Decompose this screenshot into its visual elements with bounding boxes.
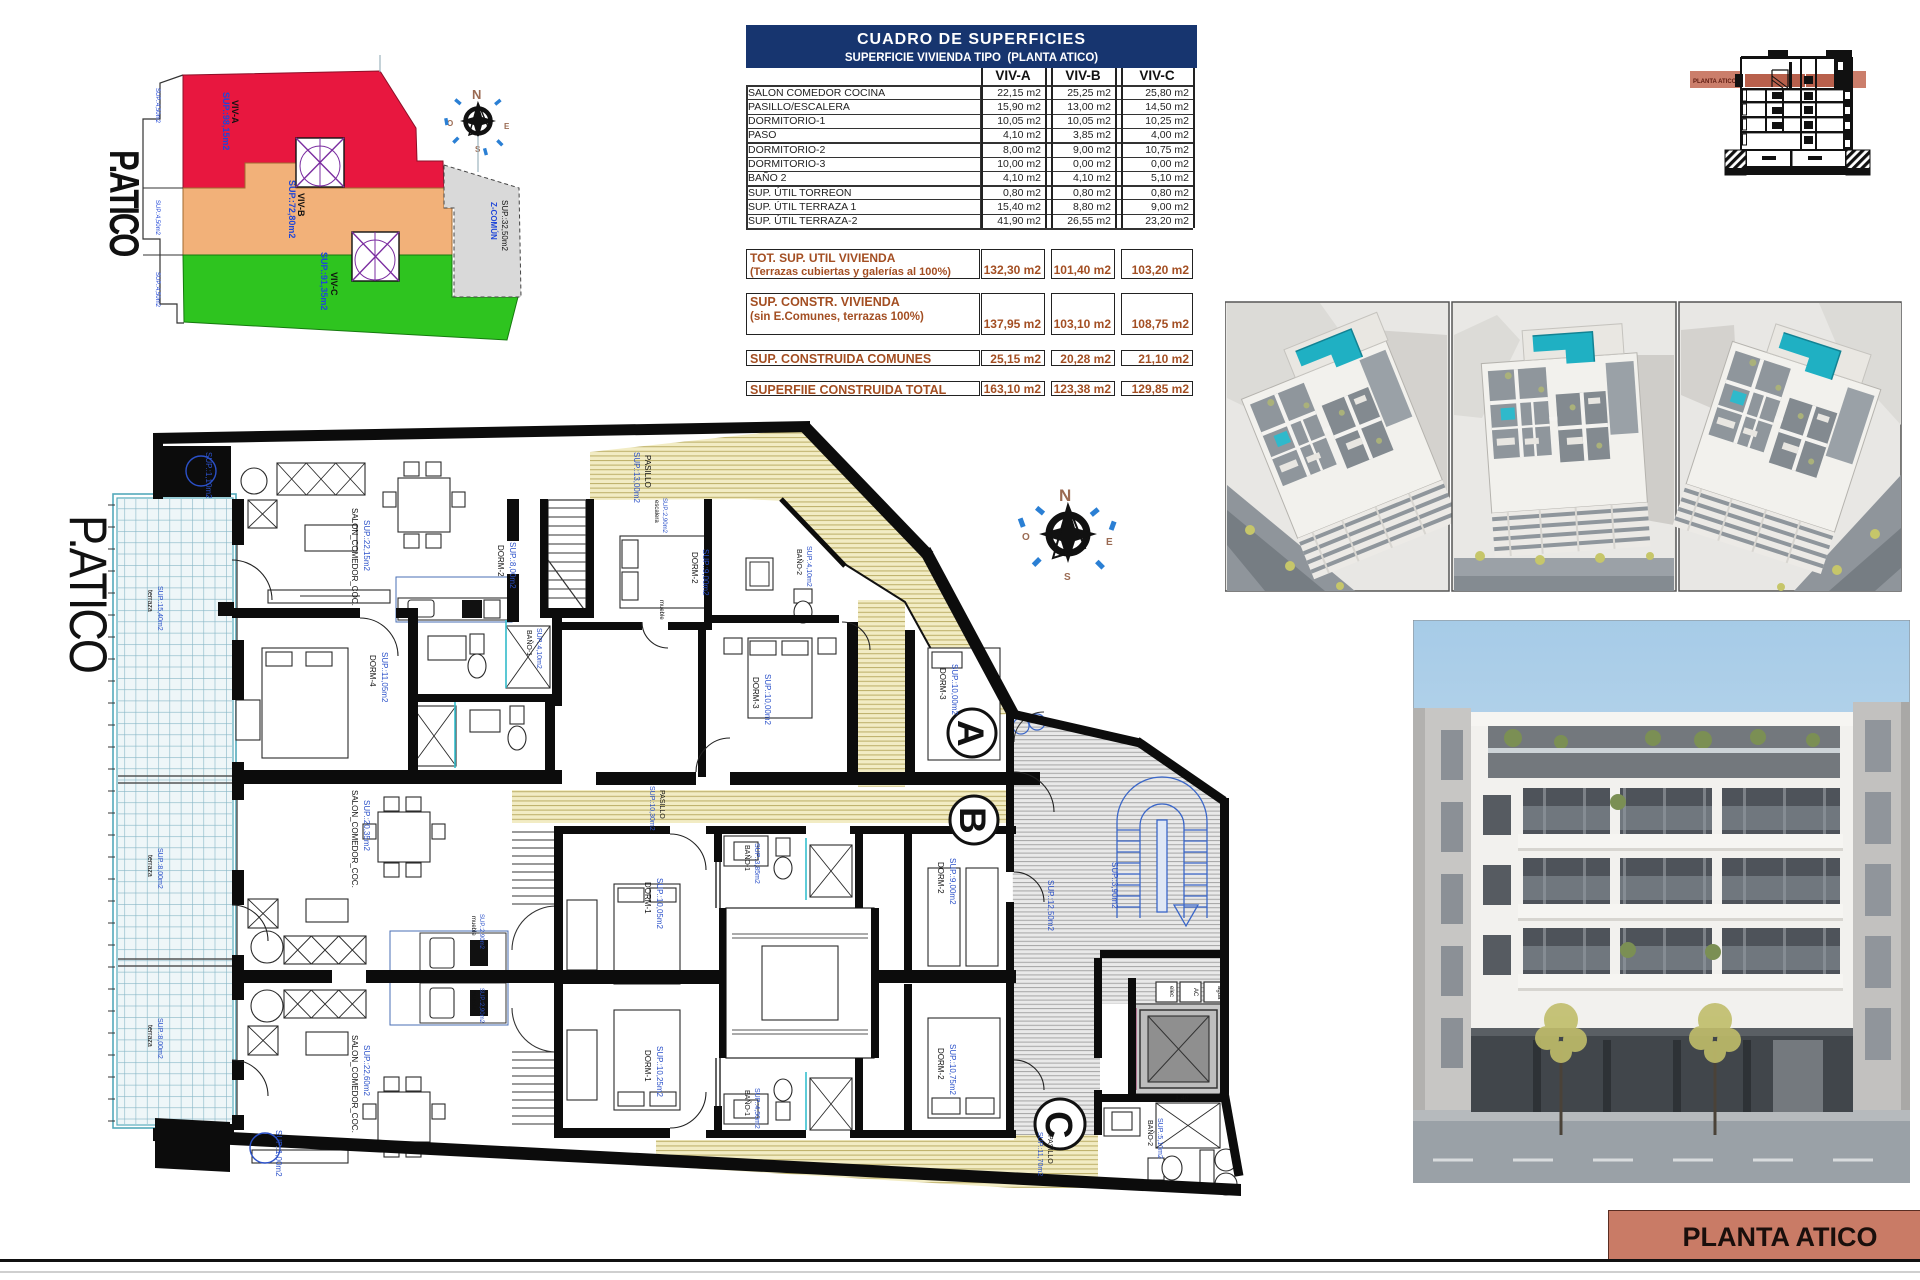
svg-text:DORM-2: DORM-2	[496, 545, 505, 577]
svg-text:terraza: terraza	[146, 1025, 153, 1047]
svg-text:A: A	[950, 720, 991, 747]
svg-text:BAÑO-2: BAÑO-2	[795, 549, 804, 575]
svg-text:SUP.:91,35m2: SUP.:91,35m2	[319, 252, 329, 310]
svg-text:elec: elec	[1168, 986, 1174, 997]
svg-text:mueble: mueble	[470, 990, 476, 1010]
svg-text:DORM-3: DORM-3	[938, 668, 947, 700]
svg-text:PASILLO: PASILLO	[643, 455, 652, 488]
svg-text:E: E	[1106, 537, 1113, 548]
svg-text:DORM-2: DORM-2	[690, 552, 699, 584]
svg-text:SUP.:10,05m2: SUP.:10,05m2	[655, 878, 664, 930]
svg-text:VIV-C: VIV-C	[329, 272, 339, 296]
svg-text:SUP.:13,00m2: SUP.:13,00m2	[632, 452, 641, 504]
svg-text:SUP.:12,50m2: SUP.:12,50m2	[1046, 880, 1055, 932]
svg-text:SUP.:1,10m2: SUP.:1,10m2	[204, 452, 213, 499]
svg-text:SUP.:3,85m2: SUP.:3,85m2	[753, 843, 760, 884]
svg-text:mueble: mueble	[470, 916, 476, 936]
svg-text:SUP.:11,05m2: SUP.:11,05m2	[380, 652, 389, 703]
svg-text:SUP.:98,15m2: SUP.:98,15m2	[221, 92, 231, 150]
svg-text:SUP.:9,00m2: SUP.:9,00m2	[948, 858, 957, 905]
svg-text:DORM-2: DORM-2	[936, 1048, 945, 1080]
svg-text:BAÑO-1: BAÑO-1	[743, 1090, 752, 1116]
svg-text:terraza: terraza	[146, 855, 153, 877]
svg-text:N: N	[1059, 486, 1071, 505]
svg-text:SALON_COMEDOR_COC.: SALON_COMEDOR_COC.	[350, 508, 359, 606]
svg-text:SUP.:2,90m2: SUP.:2,90m2	[478, 988, 484, 1024]
svg-text:SUP.:10,00m2: SUP.:10,00m2	[950, 664, 959, 716]
svg-text:escalera: escalera	[653, 500, 659, 523]
svg-text:DORM-1: DORM-1	[643, 1050, 652, 1082]
svg-text:DORM-1: DORM-1	[643, 882, 652, 914]
svg-text:DORM-4: DORM-4	[368, 655, 377, 687]
svg-text:PASILLO: PASILLO	[658, 790, 665, 819]
svg-text:terraza: terraza	[146, 590, 153, 612]
svg-text:SUP.:8,00m2: SUP.:8,00m2	[508, 542, 517, 589]
svg-text:Z-COMÚN: Z-COMÚN	[489, 202, 498, 240]
svg-text:SUP.:72,80m2: SUP.:72,80m2	[287, 180, 297, 238]
svg-text:SUP.:4,10m2: SUP.:4,10m2	[805, 546, 812, 587]
svg-text:SUP.:10,30m2: SUP.:10,30m2	[648, 786, 655, 831]
svg-text:BAÑO-1: BAÑO-1	[743, 845, 752, 871]
svg-text:E: E	[504, 122, 510, 131]
svg-text:SUP.:9,00m2: SUP.:9,00m2	[701, 549, 710, 596]
svg-text:DORM-2: DORM-2	[936, 862, 945, 894]
svg-text:SUP.:5,10m2: SUP.:5,10m2	[1156, 1118, 1163, 1159]
svg-text:S: S	[1064, 572, 1071, 583]
svg-text:SUP.:4,50m2: SUP.:4,50m2	[154, 88, 160, 124]
svg-text:SUP.:4,50m2: SUP.:4,50m2	[753, 1088, 760, 1129]
svg-text:O: O	[1022, 532, 1030, 543]
svg-text:SUP.:4,50m2: SUP.:4,50m2	[154, 200, 160, 236]
svg-text:AC: AC	[1192, 988, 1198, 997]
svg-text:SUP.:8,00m2: SUP.:8,00m2	[156, 1018, 163, 1059]
svg-text:SUP.:1,00m2: SUP.:1,00m2	[274, 1130, 283, 1177]
svg-text:SUP.:3,90m2: SUP.:3,90m2	[1110, 862, 1119, 909]
svg-text:SUP.:22,60m2: SUP.:22,60m2	[362, 1045, 371, 1097]
svg-text:DORM-3: DORM-3	[751, 677, 760, 709]
svg-text:SUP.:20,35m2: SUP.:20,35m2	[362, 800, 371, 852]
svg-text:SUP.:32,50m2: SUP.:32,50m2	[500, 200, 509, 252]
svg-text:SUP.:15,40m2: SUP.:15,40m2	[156, 586, 163, 631]
svg-text:BAÑO-2: BAÑO-2	[1146, 1120, 1155, 1146]
svg-text:SUP.:22,15m2: SUP.:22,15m2	[362, 520, 371, 572]
svg-text:SUP.:10,75m2: SUP.:10,75m2	[948, 1044, 957, 1096]
svg-text:SALON_COMEDOR_COC.: SALON_COMEDOR_COC.	[350, 1035, 359, 1133]
svg-text:SUP.:8,00m2: SUP.:8,00m2	[156, 848, 163, 889]
svg-text:SUP.:4,10m2: SUP.:4,10m2	[535, 628, 542, 669]
svg-text:SUP.:2,90m2: SUP.:2,90m2	[478, 914, 484, 950]
svg-text:SUP.:10,25m2: SUP.:10,25m2	[655, 1046, 664, 1098]
svg-text:BAÑO-1: BAÑO-1	[525, 630, 534, 656]
svg-text:SUP.:4,50m2: SUP.:4,50m2	[154, 272, 160, 308]
svg-text:PASILLO: PASILLO	[1046, 1135, 1053, 1164]
svg-text:PLANTA ATICO: PLANTA ATICO	[1693, 79, 1737, 85]
svg-text:SUP.:10,00m2: SUP.:10,00m2	[763, 674, 772, 726]
svg-text:P.ATICO: P.ATICO	[58, 515, 117, 672]
svg-text:1,40: 1,40	[1175, 1095, 1189, 1102]
svg-text:N: N	[472, 87, 481, 102]
svg-text:SUP.:11,70m2: SUP.:11,70m2	[1036, 1132, 1043, 1176]
svg-text:SUP.:2,90m2: SUP.:2,90m2	[661, 498, 667, 534]
svg-text:P.ATICO: P.ATICO	[101, 150, 148, 257]
svg-text:B: B	[952, 807, 993, 834]
svg-text:SALON_COMEDOR_COC.: SALON_COMEDOR_COC.	[350, 790, 359, 888]
svg-text:mueble: mueble	[658, 600, 664, 620]
